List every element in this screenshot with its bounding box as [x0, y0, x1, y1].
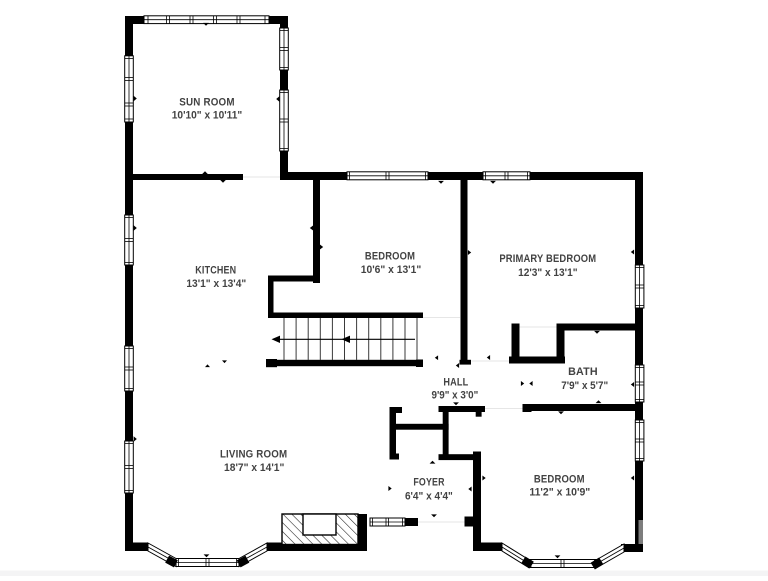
svg-text:9'9" x 3'0": 9'9" x 3'0" — [432, 390, 479, 402]
svg-text:11'2" x 10'9": 11'2" x 10'9" — [529, 487, 590, 499]
svg-text:18'7" x 14'1": 18'7" x 14'1" — [224, 462, 284, 474]
svg-text:7'9" x 5'7": 7'9" x 5'7" — [561, 380, 608, 392]
svg-text:10'6" x 13'1": 10'6" x 13'1" — [361, 264, 422, 276]
svg-text:BATH: BATH — [568, 366, 598, 378]
svg-text:HALL: HALL — [443, 377, 468, 389]
svg-text:13'1" x 13'4": 13'1" x 13'4" — [186, 278, 246, 290]
svg-text:BEDROOM: BEDROOM — [365, 251, 415, 263]
svg-text:FOYER: FOYER — [413, 477, 444, 489]
svg-text:BEDROOM: BEDROOM — [534, 473, 585, 485]
svg-text:12'3" x 13'1": 12'3" x 13'1" — [518, 267, 577, 279]
svg-text:PRIMARY BEDROOM: PRIMARY BEDROOM — [499, 253, 596, 265]
svg-text:LIVING ROOM: LIVING ROOM — [220, 449, 287, 461]
svg-text:6'4" x 4'4": 6'4" x 4'4" — [405, 490, 453, 502]
svg-text:SUN ROOM: SUN ROOM — [179, 97, 234, 109]
svg-text:10'10" x 10'11": 10'10" x 10'11" — [172, 110, 243, 122]
svg-text:KITCHEN: KITCHEN — [195, 265, 236, 277]
